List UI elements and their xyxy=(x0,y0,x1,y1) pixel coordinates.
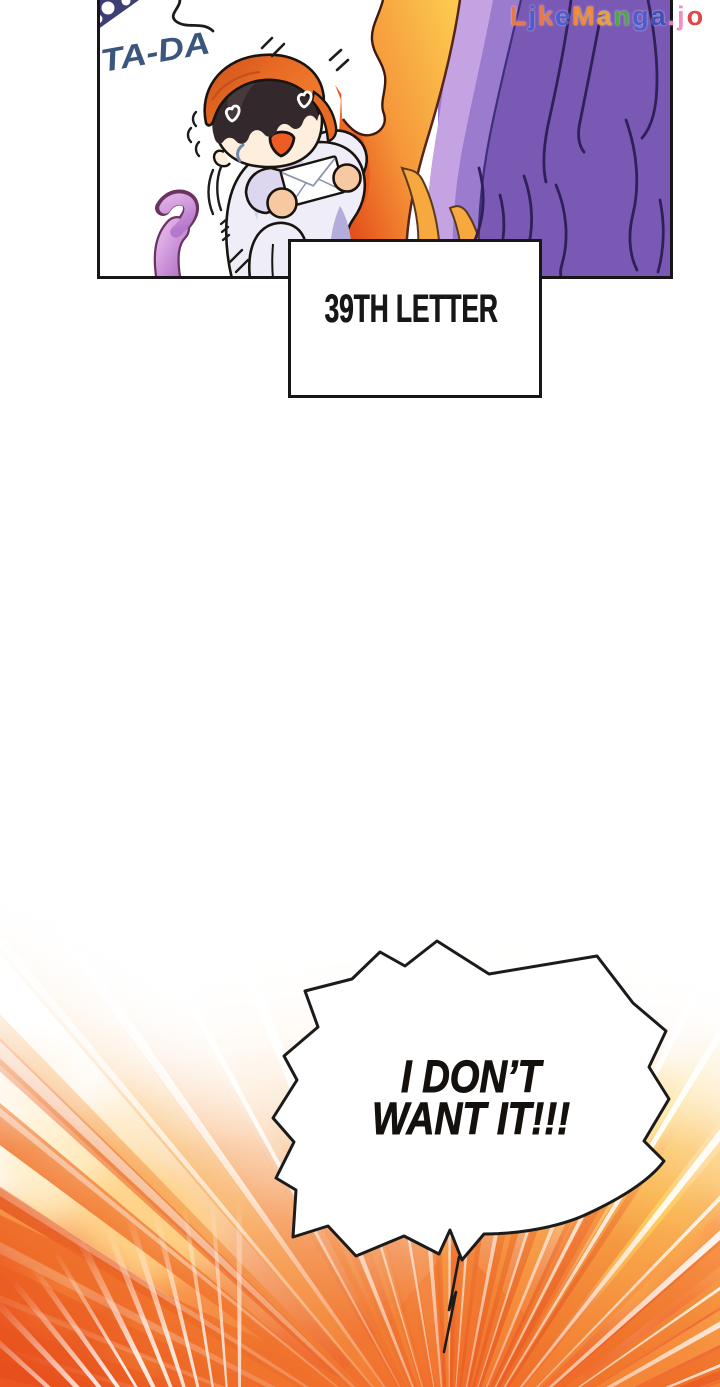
svg-text:WANT IT!!!: WANT IT!!! xyxy=(372,1093,570,1144)
